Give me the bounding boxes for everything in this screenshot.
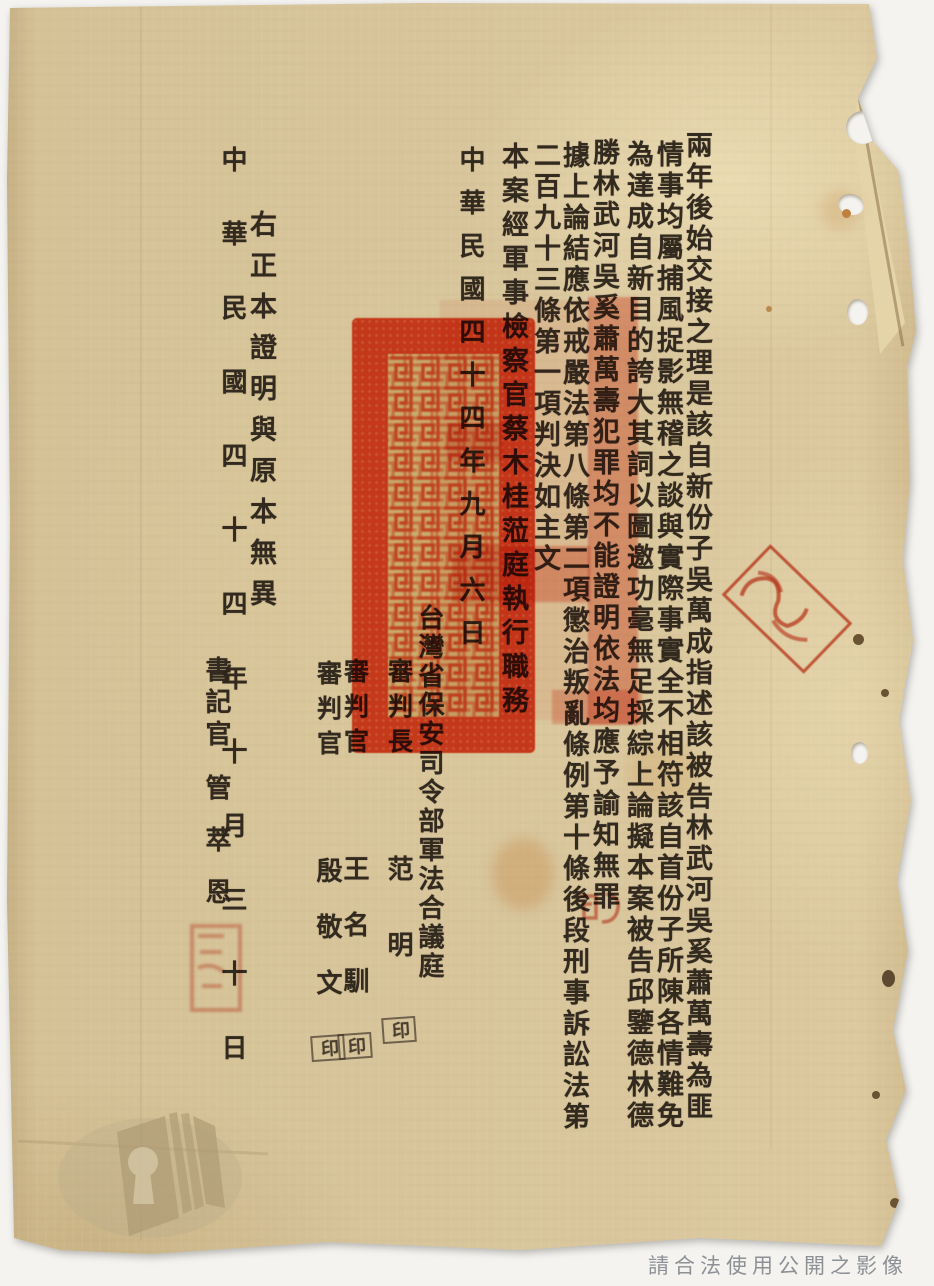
punch-hole [846,111,879,144]
clerk-name: 管萃恩 [198,774,235,930]
judge-seal-mark: 印 [381,1016,417,1044]
judge-seal-mark: 印 [310,1034,346,1062]
judge-title: 審判官 [310,660,346,765]
worm-hole [881,689,889,697]
worm-hole [890,1198,900,1208]
review-seal [574,886,630,928]
worm-hole [853,634,864,645]
worm-hole [882,970,895,987]
paper-wrap: 兩年後始交接之理是該自新份子吳萬成指述該被告林武河吳奚蕭萬壽為匪 情事均屬捕風捉… [0,0,934,1286]
archives-book-keyhole-logo [55,1100,250,1265]
signature-judge-3: 審判官 殷敬文 印 [309,660,346,1061]
judge-name: 殷敬文 [309,857,346,1025]
worm-hole [872,1091,880,1099]
seal-second-impression-wash [440,300,590,720]
clerk-title: 書記官 [198,656,235,752]
copyright-watermark: 請合法使用公開之影像 [648,1250,908,1280]
judge-name: 范明 [380,855,417,1007]
stain [492,838,554,910]
worm-hole [899,1029,909,1039]
paper-sheet: 兩年後始交接之理是該自新份子吳萬成指述該被告林武河吳奚蕭萬壽為匪 情事均屬捕風捉… [0,0,934,1286]
clerk-signature: 書記官 管萃恩 [198,656,235,930]
vertical-crease [140,0,142,1240]
tear-hole [847,299,868,325]
tear-hole [851,742,868,764]
seal-second-impression-band [588,297,638,725]
scanned-document-page: 兩年後始交接之理是該自新份子吳萬成指述該被告林武河吳奚蕭萬壽為匪 情事均屬捕風捉… [0,0,934,1286]
clerk-personal-seal [190,924,242,1012]
rust-fleck [766,306,772,312]
rust-fleck [842,209,851,218]
